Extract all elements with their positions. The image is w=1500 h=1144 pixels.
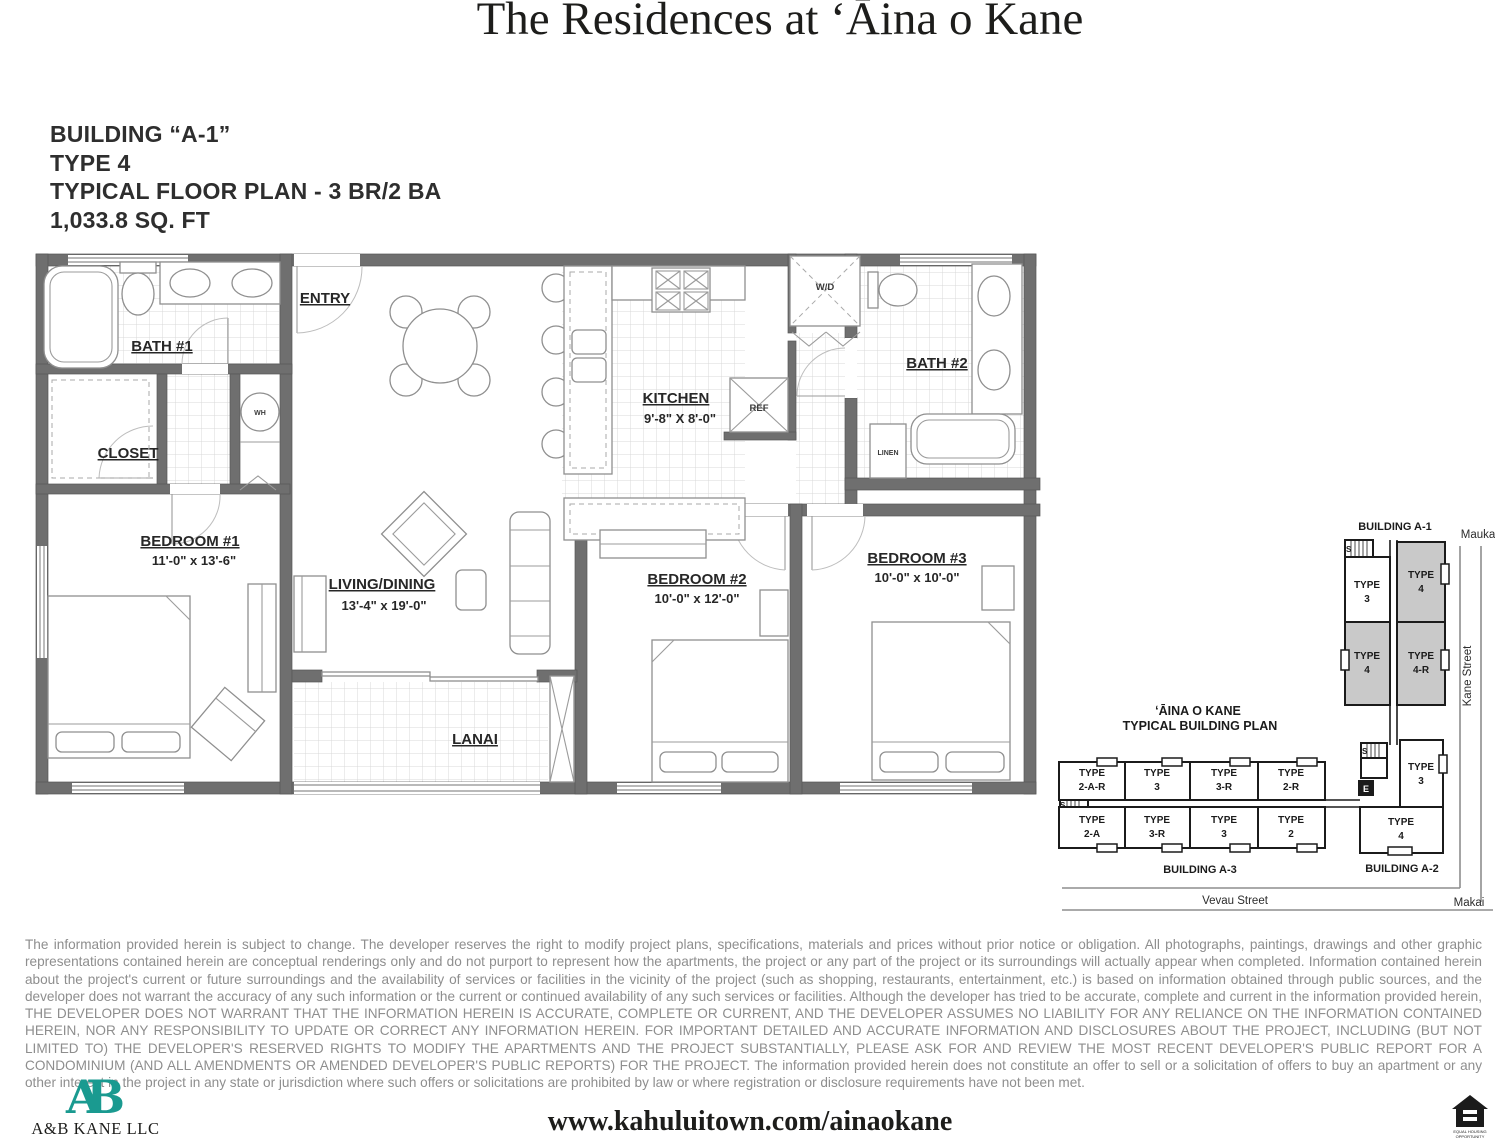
a3-bot-1-name: TYPE [1144, 815, 1170, 826]
a3-top-3-name: TYPE [1278, 768, 1304, 779]
dims-kitchen: 9'-8" X 8'-0" [644, 411, 716, 426]
plan-info-floorplan: TYPICAL FLOOR PLAN - 3 BR/2 BA [50, 177, 442, 206]
building-a1: S TYPE 3 TYPE 4 TYPE 4 TYPE 4-R [1341, 540, 1449, 745]
dims-bedroom3: 10'-0" x 10'-0" [874, 570, 959, 585]
building-a2-label: BUILDING A-2 [1365, 863, 1439, 875]
a2-unit-1-code: 4 [1398, 831, 1404, 842]
makai-label: Makai [1454, 897, 1485, 909]
room-label-living: LIVING/DINING [329, 576, 436, 593]
building-a1-label: BUILDING A-1 [1358, 521, 1432, 533]
plan-info-type: TYPE 4 [50, 149, 442, 178]
a2-stairs-label: S [1362, 747, 1368, 756]
a3-top-1-code: 3 [1154, 782, 1160, 793]
building-a3: S TYPE 2-A-R TYPE 3 TYPE 3-R TYPE 2-R [1059, 758, 1360, 876]
page: The Residences at ʻĀina o Kane BUILDING … [0, 0, 1500, 1144]
bedroom1-furniture [48, 584, 276, 761]
a2-unit-0-code: 3 [1418, 776, 1424, 787]
a1-unit-2-code: 4 [1364, 665, 1370, 676]
dims-living: 13'-4" x 19'-0" [341, 598, 426, 613]
a2-elevator-label: E [1363, 784, 1369, 794]
a3-bot-1-code: 3-R [1149, 829, 1166, 840]
a1-stairs-label: S [1346, 545, 1352, 554]
bedroom3-furniture [872, 566, 1014, 780]
label-wh: WH [254, 410, 266, 417]
equal-housing-icon: EQUAL HOUSING OPPORTUNITY [1450, 1094, 1490, 1140]
a1-unit-0-code: 3 [1364, 594, 1370, 605]
room-label-bath2: BATH #2 [906, 355, 967, 372]
lanai-storage [550, 676, 574, 782]
a2-unit-1-name: TYPE [1388, 817, 1414, 828]
site-url: www.kahuluitown.com/ainaokane [120, 1106, 1380, 1138]
dims-bedroom1: 11'-0" x 13'-6" [152, 553, 236, 568]
label-ref: REF [750, 403, 769, 414]
label-linen: LINEN [878, 450, 899, 457]
plan-info: BUILDING “A-1” TYPE 4 TYPICAL FLOOR PLAN… [50, 120, 442, 234]
room-label-bedroom3: BEDROOM #3 [867, 550, 966, 567]
a3-bot-3-code: 2 [1288, 829, 1294, 840]
a1-unit-0-name: TYPE [1354, 580, 1380, 591]
a3-bot-2-name: TYPE [1211, 815, 1237, 826]
a1-unit-1-code: 4 [1418, 584, 1424, 595]
a3-top-3-code: 2-R [1283, 782, 1300, 793]
a1-unit-3-name: TYPE [1408, 651, 1434, 662]
building-plan-title-2: TYPICAL BUILDING PLAN [1123, 719, 1278, 733]
a3-bot-0-code: 2-A [1084, 829, 1100, 840]
mauka-label: Mauka [1461, 529, 1495, 541]
disclaimer-text: The information provided herein is subje… [25, 936, 1482, 1092]
kane-street-label: Kane Street [1462, 645, 1474, 707]
bedroom2-furniture [600, 530, 788, 782]
a3-top-0-name: TYPE [1079, 768, 1105, 779]
room-label-bedroom2: BEDROOM #2 [647, 571, 746, 588]
a3-top-1-name: TYPE [1144, 768, 1170, 779]
floor-plan-drawing: ENTRY BATH #1 CLOSET WH BEDROOM #1 11'-0… [32, 246, 1042, 804]
equal-housing-text-2: OPPORTUNITY [1456, 1134, 1485, 1139]
room-label-kitchen: KITCHEN [643, 390, 710, 407]
plan-info-area: 1,033.8 SQ. FT [50, 206, 442, 235]
room-label-entry: ENTRY [300, 290, 350, 307]
page-title: The Residences at ʻĀina o Kane [60, 0, 1500, 46]
building-a2: S E TYPE 3 TYPE 4 BUILDING A-2 [1358, 740, 1447, 875]
building-a3-label: BUILDING A-3 [1163, 864, 1237, 876]
a2-unit-0-name: TYPE [1408, 762, 1434, 773]
bedroom-divider-wall [790, 504, 802, 794]
plan-info-building: BUILDING “A-1” [50, 120, 442, 149]
room-label-bath1: BATH #1 [131, 338, 192, 355]
room-label-closet: CLOSET [98, 445, 159, 462]
dims-bedroom2: 10'-0" x 12'-0" [654, 591, 739, 606]
a1-unit-1-name: TYPE [1408, 570, 1434, 581]
room-label-lanai: LANAI [452, 731, 498, 748]
a3-top-2-code: 3-R [1216, 782, 1233, 793]
a3-bot-2-code: 3 [1221, 829, 1227, 840]
a3-bot-3-name: TYPE [1278, 815, 1304, 826]
a1-unit-2-name: TYPE [1354, 651, 1380, 662]
building-plan-title-1: ʻĀINA O KANE [1155, 704, 1241, 718]
building-plan-diagram: BUILDING A-1 Mauka Kane Street S TYPE [1050, 512, 1495, 922]
a1-unit-3-code: 4-R [1413, 665, 1430, 676]
a3-bot-0-name: TYPE [1079, 815, 1105, 826]
vevau-street-label: Vevau Street [1202, 895, 1269, 907]
a3-top-2-name: TYPE [1211, 768, 1237, 779]
label-wd: W/D [816, 282, 835, 293]
a3-top-0-code: 2-A-R [1079, 782, 1106, 793]
room-label-bedroom1: BEDROOM #1 [140, 533, 239, 550]
